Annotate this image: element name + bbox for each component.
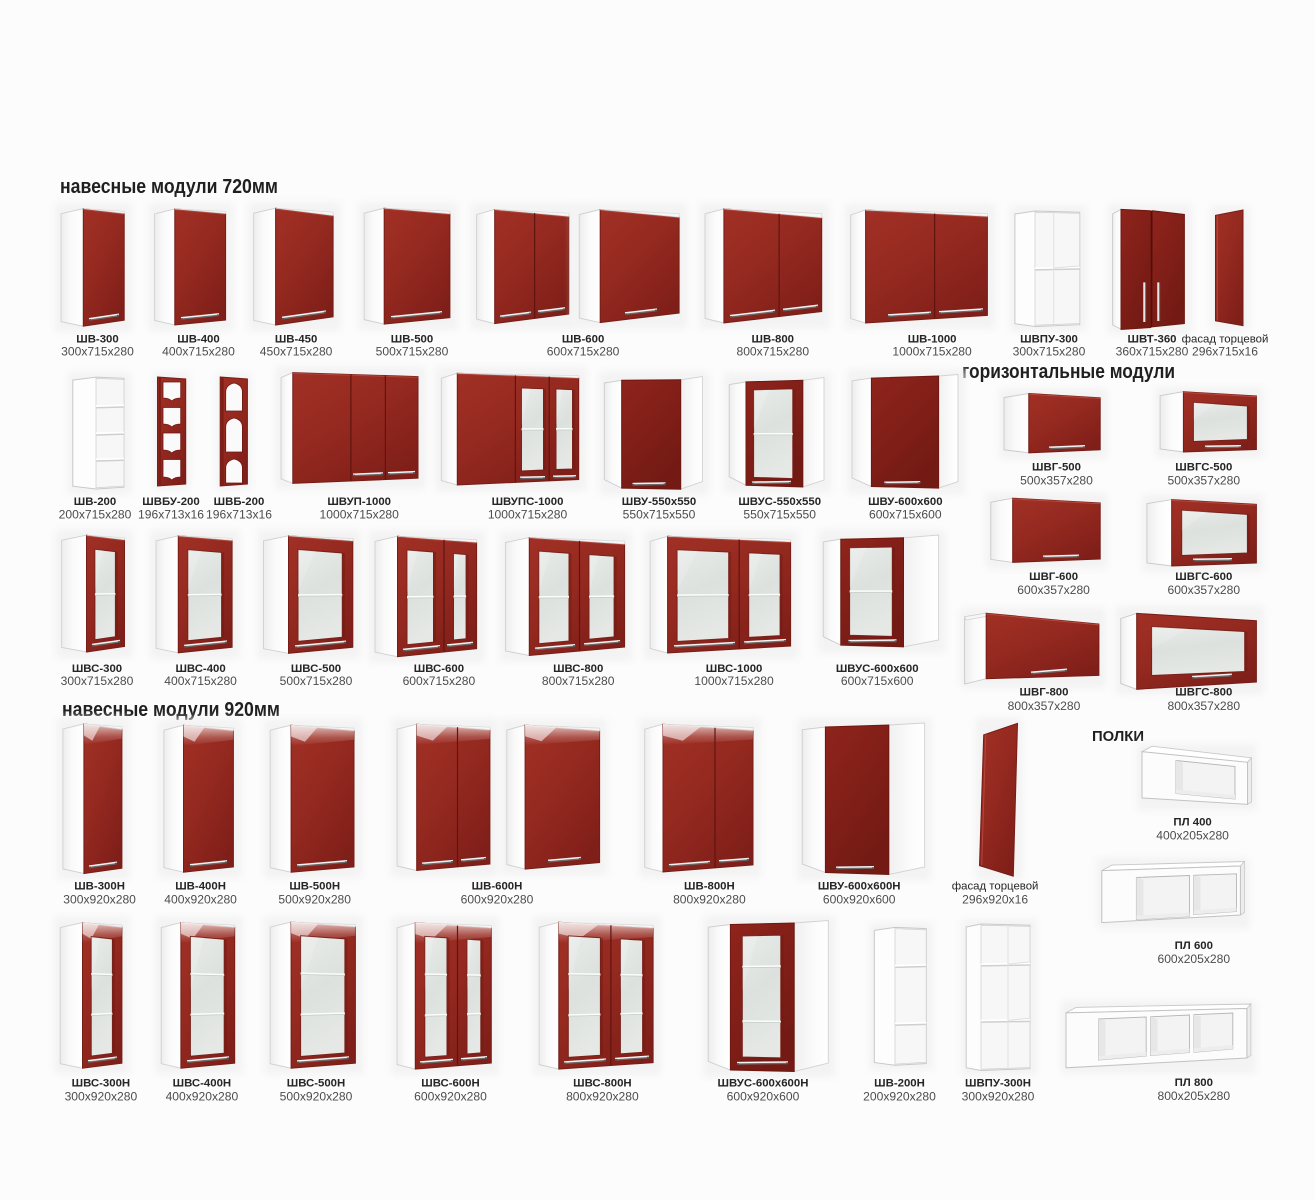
svg-text:1000х715х280: 1000х715х280 (488, 507, 568, 521)
svg-text:ШВС-800Н: ШВС-800Н (573, 1078, 632, 1090)
svg-text:300х715х280: 300х715х280 (1013, 345, 1086, 359)
svg-text:ШВУС-600х600Н: ШВУС-600х600Н (718, 1078, 809, 1090)
svg-text:ШВ-800Н: ШВ-800Н (684, 881, 735, 893)
svg-text:196х713х16: 196х713х16 (206, 507, 272, 521)
svg-text:400х715х280: 400х715х280 (162, 345, 235, 359)
svg-text:360х715х280: 360х715х280 (1116, 345, 1189, 359)
svg-text:ШВУ-600х600Н: ШВУ-600х600Н (818, 881, 901, 893)
svg-text:800х920х280: 800х920х280 (566, 1090, 639, 1104)
svg-text:500х920х280: 500х920х280 (280, 1090, 353, 1104)
svg-text:ШВУП-1000: ШВУП-1000 (327, 496, 391, 508)
svg-text:ШВС-500: ШВС-500 (291, 663, 341, 675)
svg-text:фасад торцевой: фасад торцевой (952, 881, 1039, 893)
svg-text:ШВУС-600х600: ШВУС-600х600 (836, 663, 919, 675)
svg-text:800х715х280: 800х715х280 (542, 674, 615, 688)
svg-text:ШВС-300Н: ШВС-300Н (72, 1078, 131, 1090)
svg-text:ШВ-400Н: ШВ-400Н (175, 881, 226, 893)
svg-text:500х920х280: 500х920х280 (278, 893, 351, 907)
svg-text:ШВУПС-1000: ШВУПС-1000 (492, 496, 564, 508)
svg-text:ШВПУ-300Н: ШВПУ-300Н (965, 1078, 1031, 1090)
svg-text:1000х715х280: 1000х715х280 (694, 674, 774, 688)
svg-text:600х205х280: 600х205х280 (1157, 952, 1230, 966)
svg-text:ШВС-600Н: ШВС-600Н (421, 1078, 480, 1090)
svg-text:300х920х280: 300х920х280 (63, 893, 136, 907)
svg-text:300х715х280: 300х715х280 (61, 345, 134, 359)
svg-text:200х715х280: 200х715х280 (59, 507, 132, 521)
svg-text:ШВГС-800: ШВГС-800 (1175, 687, 1232, 699)
svg-text:296х920х16: 296х920х16 (962, 893, 1028, 907)
svg-text:296х715х16: 296х715х16 (1192, 345, 1258, 359)
svg-text:800х357х280: 800х357х280 (1008, 699, 1081, 713)
svg-text:600х715х600: 600х715х600 (841, 674, 914, 688)
svg-text:горизонтальные модули: горизонтальные модули (962, 360, 1175, 383)
svg-text:400х205х280: 400х205х280 (1156, 828, 1229, 842)
svg-text:ШВС-800: ШВС-800 (553, 663, 603, 675)
svg-text:800х205х280: 800х205х280 (1157, 1089, 1230, 1103)
svg-text:400х920х280: 400х920х280 (166, 1090, 239, 1104)
svg-text:ПЛ 800: ПЛ 800 (1175, 1077, 1213, 1089)
svg-text:550х715х550: 550х715х550 (743, 507, 816, 521)
svg-text:ШВС-300: ШВС-300 (72, 663, 122, 675)
svg-text:ШВГ-800: ШВГ-800 (1020, 687, 1069, 699)
svg-text:ПЛ 400: ПЛ 400 (1173, 816, 1211, 828)
svg-text:800х357х280: 800х357х280 (1167, 699, 1240, 713)
svg-text:300х920х280: 300х920х280 (65, 1090, 138, 1104)
svg-text:ШВ-600Н: ШВ-600Н (472, 881, 523, 893)
svg-text:300х920х280: 300х920х280 (962, 1090, 1035, 1104)
svg-text:ШВС-1000: ШВС-1000 (706, 663, 763, 675)
svg-text:ШВГ-500: ШВГ-500 (1032, 461, 1081, 473)
svg-text:200х920х280: 200х920х280 (863, 1090, 936, 1104)
svg-text:500х357х280: 500х357х280 (1020, 474, 1093, 488)
svg-text:ШВГС-600: ШВГС-600 (1175, 571, 1232, 583)
svg-text:500х715х280: 500х715х280 (376, 345, 449, 359)
svg-text:550х715х550: 550х715х550 (623, 507, 696, 521)
svg-text:ШВГ-600: ШВГ-600 (1029, 571, 1078, 583)
svg-text:600х357х280: 600х357х280 (1167, 583, 1240, 597)
svg-text:ШВУ-600х600: ШВУ-600х600 (868, 496, 942, 508)
svg-text:600х920х280: 600х920х280 (414, 1090, 487, 1104)
svg-text:ШВ-200Н: ШВ-200Н (874, 1078, 925, 1090)
svg-text:ПЛ 600: ПЛ 600 (1175, 940, 1213, 952)
svg-text:ШВБУ-200: ШВБУ-200 (142, 496, 199, 508)
svg-text:600х920х280: 600х920х280 (461, 893, 534, 907)
svg-text:ШВУС-550х550: ШВУС-550х550 (738, 496, 821, 508)
svg-text:600х920х600: 600х920х600 (823, 893, 896, 907)
svg-text:400х715х280: 400х715х280 (164, 674, 237, 688)
svg-text:450х715х280: 450х715х280 (260, 345, 333, 359)
svg-text:ШВС-400: ШВС-400 (175, 663, 225, 675)
svg-text:600х920х600: 600х920х600 (727, 1090, 800, 1104)
svg-text:300х715х280: 300х715х280 (61, 674, 134, 688)
svg-text:1000х715х280: 1000х715х280 (892, 345, 972, 359)
svg-text:1000х715х280: 1000х715х280 (320, 507, 400, 521)
svg-text:ШВБ-200: ШВБ-200 (214, 496, 265, 508)
svg-text:600х357х280: 600х357х280 (1017, 583, 1090, 597)
svg-text:600х715х280: 600х715х280 (403, 674, 476, 688)
svg-text:ШВУ-550х550: ШВУ-550х550 (622, 496, 696, 508)
svg-text:ШВ-300Н: ШВ-300Н (74, 881, 125, 893)
svg-text:ШВС-500Н: ШВС-500Н (287, 1078, 346, 1090)
svg-text:500х715х280: 500х715х280 (280, 674, 353, 688)
svg-text:600х715х280: 600х715х280 (547, 345, 620, 359)
svg-text:800х920х280: 800х920х280 (673, 893, 746, 907)
svg-text:600х715х600: 600х715х600 (869, 507, 942, 521)
svg-text:ШВГС-500: ШВГС-500 (1175, 461, 1232, 473)
svg-text:400х920х280: 400х920х280 (164, 893, 237, 907)
svg-text:навесные модули 920мм: навесные модули 920мм (62, 698, 280, 721)
svg-text:ШВ-200: ШВ-200 (74, 496, 116, 508)
svg-text:ШВС-400Н: ШВС-400Н (173, 1078, 232, 1090)
svg-text:800х715х280: 800х715х280 (736, 345, 809, 359)
svg-text:ШВС-600: ШВС-600 (414, 663, 464, 675)
svg-text:196х713х16: 196х713х16 (138, 507, 204, 521)
svg-text:ШВ-500Н: ШВ-500Н (289, 881, 340, 893)
svg-text:ПОЛКИ: ПОЛКИ (1092, 729, 1144, 745)
svg-text:500х357х280: 500х357х280 (1167, 474, 1240, 488)
svg-text:навесные модули 720мм: навесные модули 720мм (60, 175, 278, 198)
